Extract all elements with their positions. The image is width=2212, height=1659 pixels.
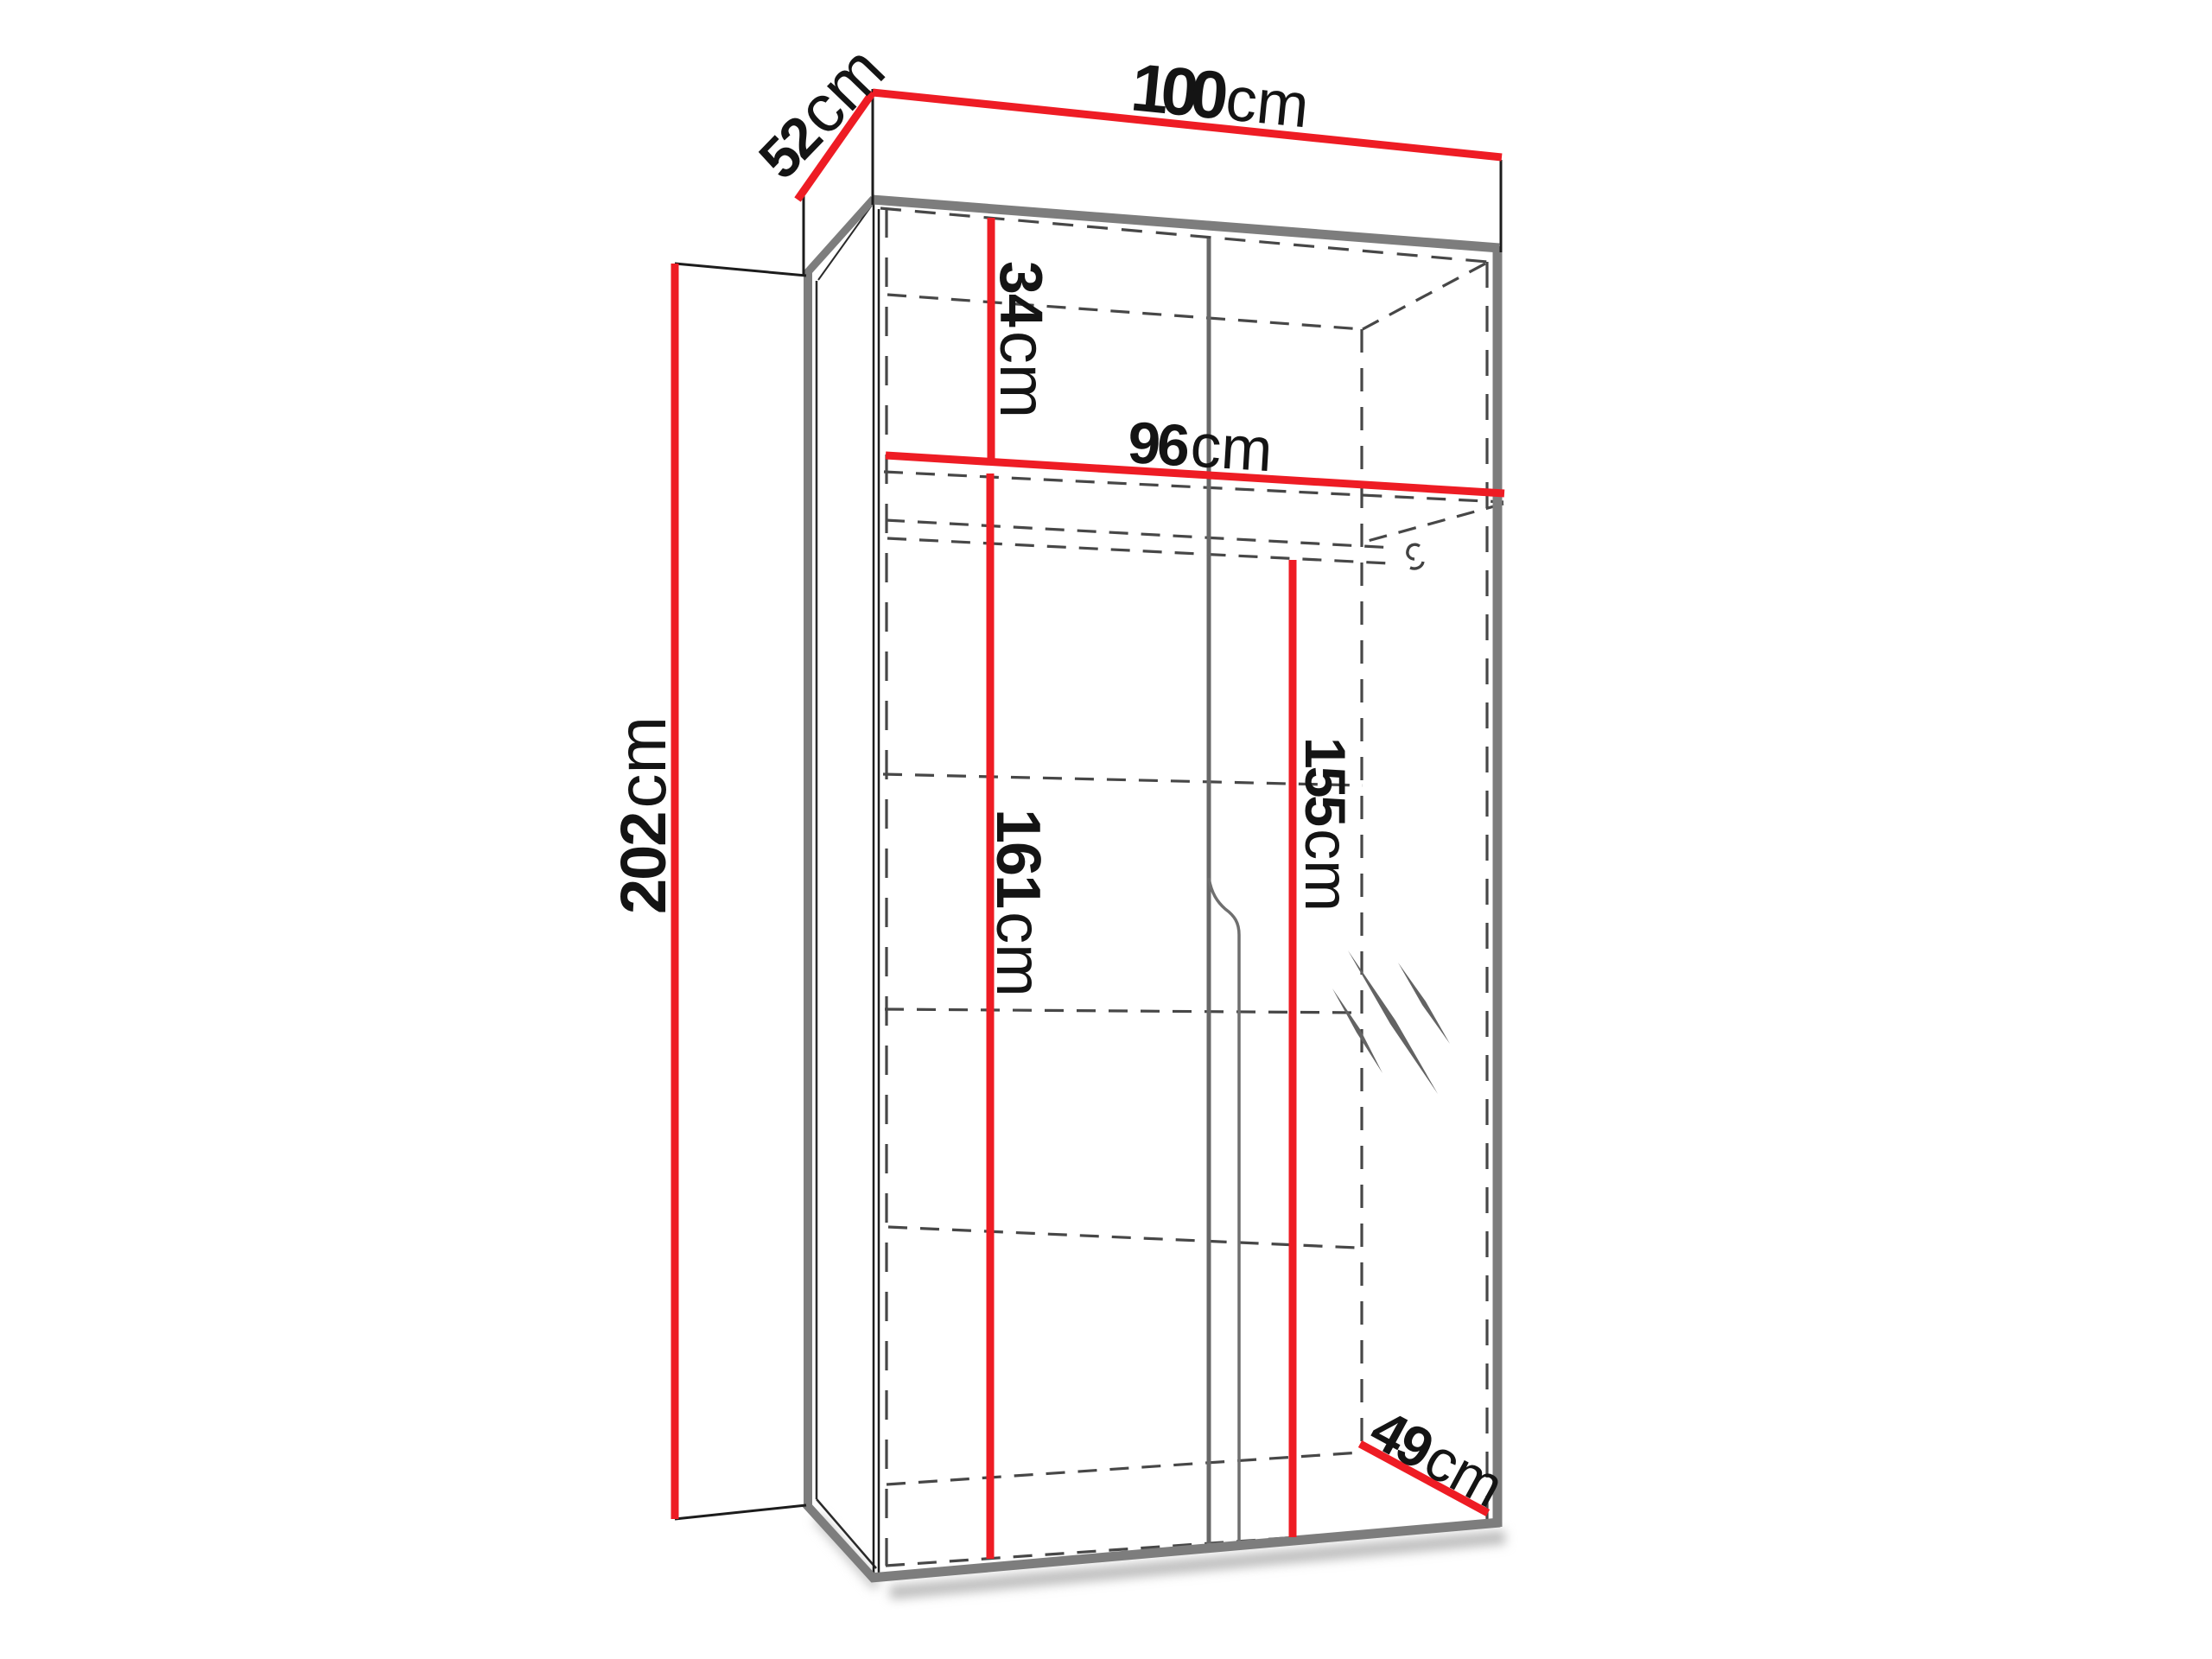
svg-text:202cm: 202cm bbox=[603, 716, 680, 914]
svg-text:34cm: 34cm bbox=[986, 261, 1059, 418]
svg-text:155cm: 155cm bbox=[1292, 737, 1361, 912]
svg-text:96cm: 96cm bbox=[1126, 408, 1274, 485]
svg-text:161cm: 161cm bbox=[983, 809, 1055, 997]
